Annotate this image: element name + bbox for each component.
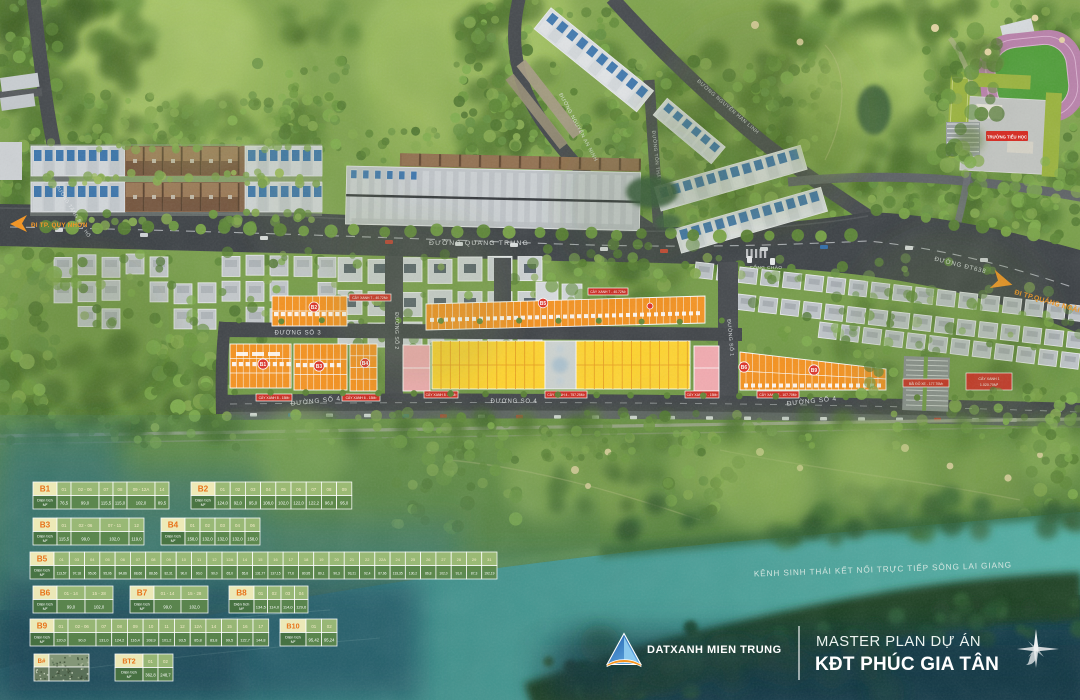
svg-text:131,77: 131,77 bbox=[255, 572, 265, 576]
svg-text:MASTER PLAN DỰ ÁN: MASTER PLAN DỰ ÁN bbox=[816, 633, 981, 650]
svg-text:92,0: 92,0 bbox=[234, 501, 243, 506]
svg-text:95,24: 95,24 bbox=[324, 638, 335, 643]
svg-text:DATXANH MIEN TRUNG: DATXANH MIEN TRUNG bbox=[647, 644, 782, 656]
svg-text:76,5: 76,5 bbox=[60, 501, 69, 506]
svg-text:16: 16 bbox=[273, 557, 278, 562]
svg-text:21: 21 bbox=[350, 557, 355, 562]
svg-text:10: 10 bbox=[182, 557, 187, 562]
svg-text:65,8: 65,8 bbox=[242, 572, 249, 576]
svg-text:01: 01 bbox=[220, 487, 225, 492]
svg-text:90,0: 90,0 bbox=[78, 639, 85, 643]
svg-text:20: 20 bbox=[334, 557, 339, 562]
svg-text:24: 24 bbox=[395, 557, 400, 562]
svg-text:77,6: 77,6 bbox=[288, 572, 295, 576]
svg-text:362,8: 362,8 bbox=[145, 673, 156, 678]
svg-text:108,0: 108,0 bbox=[263, 501, 274, 506]
svg-text:97,18: 97,18 bbox=[73, 572, 81, 576]
svg-text:07: 07 bbox=[311, 487, 316, 492]
svg-text:82,31: 82,31 bbox=[164, 572, 172, 576]
svg-text:95,0: 95,0 bbox=[249, 501, 258, 506]
svg-text:89,5: 89,5 bbox=[158, 501, 167, 506]
svg-text:08: 08 bbox=[327, 487, 332, 492]
svg-text:01: 01 bbox=[190, 523, 195, 528]
svg-text:06: 06 bbox=[250, 523, 255, 528]
svg-text:15 - 28: 15 - 28 bbox=[92, 591, 106, 596]
svg-text:03: 03 bbox=[251, 487, 256, 492]
svg-text:09: 09 bbox=[166, 557, 171, 562]
svg-text:KĐT PHÚC GIA TÂN: KĐT PHÚC GIA TÂN bbox=[815, 653, 999, 675]
svg-text:15: 15 bbox=[258, 557, 263, 562]
svg-text:129,6: 129,6 bbox=[296, 605, 307, 610]
svg-text:29: 29 bbox=[472, 557, 477, 562]
svg-text:B3: B3 bbox=[40, 521, 51, 530]
svg-text:M²: M² bbox=[291, 639, 296, 644]
svg-text:132,0: 132,0 bbox=[202, 537, 213, 542]
svg-text:02: 02 bbox=[327, 624, 332, 629]
svg-text:01: 01 bbox=[311, 624, 316, 629]
svg-text:09: 09 bbox=[133, 624, 138, 629]
svg-text:27: 27 bbox=[441, 557, 446, 562]
svg-text:02: 02 bbox=[205, 523, 210, 528]
svg-text:02 - 06: 02 - 06 bbox=[79, 523, 93, 528]
svg-text:M²: M² bbox=[239, 606, 244, 611]
svg-text:113,57: 113,57 bbox=[57, 572, 67, 576]
svg-text:B8: B8 bbox=[236, 589, 247, 598]
svg-text:87,3: 87,3 bbox=[471, 572, 478, 576]
svg-text:04: 04 bbox=[299, 591, 304, 596]
svg-text:90,3: 90,3 bbox=[333, 572, 340, 576]
svg-text:248,7: 248,7 bbox=[160, 673, 171, 678]
svg-text:102,0: 102,0 bbox=[278, 501, 289, 506]
svg-text:17: 17 bbox=[289, 557, 294, 562]
svg-text:19: 19 bbox=[319, 557, 324, 562]
svg-text:B4: B4 bbox=[168, 521, 179, 530]
svg-text:B7: B7 bbox=[137, 589, 148, 598]
svg-text:131,0: 131,0 bbox=[99, 639, 109, 643]
svg-text:05: 05 bbox=[105, 557, 110, 562]
svg-text:07 - 11: 07 - 11 bbox=[108, 523, 122, 528]
svg-text:05: 05 bbox=[281, 487, 286, 492]
svg-text:03: 03 bbox=[75, 557, 80, 562]
svg-text:08: 08 bbox=[117, 624, 122, 629]
svg-text:99,0: 99,0 bbox=[67, 605, 76, 610]
svg-text:114,0: 114,0 bbox=[269, 605, 279, 610]
svg-text:83,8: 83,8 bbox=[210, 639, 217, 643]
svg-text:122,0: 122,0 bbox=[293, 501, 304, 506]
svg-text:07: 07 bbox=[136, 557, 141, 562]
svg-text:BT2: BT2 bbox=[122, 659, 135, 666]
svg-text:01 - 14: 01 - 14 bbox=[64, 591, 78, 596]
svg-text:92,4: 92,4 bbox=[364, 572, 371, 576]
svg-text:12A: 12A bbox=[226, 557, 233, 562]
svg-text:122,2: 122,2 bbox=[309, 501, 320, 506]
svg-text:B10: B10 bbox=[286, 622, 299, 631]
svg-text:95,0: 95,0 bbox=[340, 501, 349, 506]
svg-text:132,0: 132,0 bbox=[232, 537, 243, 542]
svg-text:132,0: 132,0 bbox=[217, 537, 228, 542]
svg-text:90,0: 90,0 bbox=[211, 572, 218, 576]
svg-text:93,5: 93,5 bbox=[179, 639, 186, 643]
svg-text:B#: B# bbox=[38, 659, 46, 665]
svg-text:115,0: 115,0 bbox=[115, 501, 126, 506]
svg-text:65,0: 65,0 bbox=[226, 572, 233, 576]
svg-text:14: 14 bbox=[211, 624, 216, 629]
svg-text:86,8: 86,8 bbox=[425, 572, 432, 576]
svg-text:08: 08 bbox=[118, 487, 123, 492]
svg-text:137,15: 137,15 bbox=[270, 572, 280, 576]
svg-text:M²: M² bbox=[43, 502, 48, 507]
svg-text:02: 02 bbox=[163, 659, 168, 664]
svg-text:M²: M² bbox=[127, 674, 132, 679]
svg-text:116,4: 116,4 bbox=[131, 639, 140, 643]
svg-text:122,7: 122,7 bbox=[240, 639, 250, 643]
svg-text:115,5: 115,5 bbox=[59, 537, 70, 542]
svg-text:80,1: 80,1 bbox=[318, 572, 325, 576]
svg-text:11: 11 bbox=[164, 624, 169, 629]
svg-text:87,66: 87,66 bbox=[378, 572, 386, 576]
svg-text:119,0: 119,0 bbox=[131, 537, 142, 542]
svg-text:M²: M² bbox=[140, 606, 145, 611]
svg-text:124,2: 124,2 bbox=[115, 639, 125, 643]
svg-text:08: 08 bbox=[151, 557, 156, 562]
svg-text:102,0: 102,0 bbox=[189, 605, 200, 610]
svg-text:88,66: 88,66 bbox=[134, 572, 142, 576]
svg-text:09 - 12A: 09 - 12A bbox=[133, 487, 150, 492]
svg-text:192,19: 192,19 bbox=[484, 572, 494, 576]
svg-text:03: 03 bbox=[285, 591, 290, 596]
svg-text:93,21: 93,21 bbox=[348, 572, 356, 576]
svg-text:22A: 22A bbox=[379, 557, 386, 562]
svg-text:01: 01 bbox=[258, 591, 263, 596]
svg-text:99,0: 99,0 bbox=[163, 605, 172, 610]
svg-text:12: 12 bbox=[180, 624, 185, 629]
svg-text:115,5: 115,5 bbox=[101, 501, 112, 506]
svg-text:15 - 28: 15 - 28 bbox=[188, 591, 202, 596]
svg-text:95,42: 95,42 bbox=[309, 638, 320, 643]
svg-text:99,0: 99,0 bbox=[81, 537, 90, 542]
svg-text:124,0: 124,0 bbox=[217, 501, 228, 506]
svg-text:102,0: 102,0 bbox=[94, 605, 105, 610]
svg-text:12: 12 bbox=[134, 523, 139, 528]
svg-text:03: 03 bbox=[220, 523, 225, 528]
svg-text:B5: B5 bbox=[37, 555, 48, 564]
svg-text:31: 31 bbox=[487, 557, 492, 562]
svg-text:06: 06 bbox=[296, 487, 301, 492]
svg-text:15: 15 bbox=[227, 624, 232, 629]
svg-text:25: 25 bbox=[411, 557, 416, 562]
svg-text:90,0: 90,0 bbox=[196, 572, 203, 576]
svg-text:14: 14 bbox=[160, 487, 165, 492]
svg-text:B2: B2 bbox=[198, 485, 209, 494]
svg-text:07: 07 bbox=[104, 487, 109, 492]
svg-text:M²: M² bbox=[171, 538, 176, 543]
svg-text:108,9: 108,9 bbox=[146, 639, 156, 643]
svg-text:M²: M² bbox=[43, 538, 48, 543]
svg-text:16: 16 bbox=[243, 624, 248, 629]
svg-text:M²: M² bbox=[43, 606, 48, 611]
svg-text:134,5: 134,5 bbox=[256, 605, 267, 610]
svg-text:01: 01 bbox=[148, 659, 153, 664]
svg-text:M²: M² bbox=[201, 502, 206, 507]
svg-text:B6: B6 bbox=[40, 589, 51, 598]
svg-text:B9: B9 bbox=[37, 622, 48, 631]
svg-text:12: 12 bbox=[212, 557, 217, 562]
svg-text:133,35: 133,35 bbox=[393, 572, 403, 576]
svg-text:102,0: 102,0 bbox=[439, 572, 447, 576]
svg-text:101,2: 101,2 bbox=[162, 639, 172, 643]
svg-text:02: 02 bbox=[272, 591, 277, 596]
svg-text:10: 10 bbox=[148, 624, 153, 629]
svg-text:102,0: 102,0 bbox=[109, 537, 120, 542]
svg-text:07: 07 bbox=[101, 624, 106, 629]
svg-text:M²: M² bbox=[40, 639, 45, 644]
svg-text:22: 22 bbox=[365, 557, 370, 562]
svg-text:130,2: 130,2 bbox=[409, 572, 417, 576]
svg-text:04: 04 bbox=[235, 523, 240, 528]
svg-text:12A: 12A bbox=[194, 624, 202, 629]
svg-text:158,0: 158,0 bbox=[247, 537, 258, 542]
svg-text:80,95: 80,95 bbox=[302, 572, 310, 576]
svg-text:M²: M² bbox=[40, 572, 45, 577]
svg-text:99,0: 99,0 bbox=[81, 501, 90, 506]
svg-text:04: 04 bbox=[266, 487, 271, 492]
svg-text:114,0: 114,0 bbox=[283, 605, 293, 610]
svg-text:01 - 14: 01 - 14 bbox=[161, 591, 175, 596]
svg-text:01: 01 bbox=[62, 487, 67, 492]
svg-text:90,0: 90,0 bbox=[181, 572, 188, 576]
svg-text:01: 01 bbox=[59, 557, 64, 562]
svg-text:96,0: 96,0 bbox=[325, 501, 334, 506]
svg-text:28: 28 bbox=[457, 557, 462, 562]
svg-text:02: 02 bbox=[235, 487, 240, 492]
svg-text:09: 09 bbox=[342, 487, 347, 492]
svg-text:B1: B1 bbox=[40, 485, 51, 494]
svg-text:06: 06 bbox=[120, 557, 125, 562]
svg-text:88,66: 88,66 bbox=[149, 572, 157, 576]
svg-text:102,0: 102,0 bbox=[136, 501, 147, 506]
svg-text:99,5: 99,5 bbox=[226, 639, 233, 643]
svg-text:14: 14 bbox=[243, 557, 248, 562]
svg-text:85,8: 85,8 bbox=[194, 639, 201, 643]
svg-text:02 - 06: 02 - 06 bbox=[75, 624, 89, 629]
svg-text:144,8: 144,8 bbox=[256, 639, 266, 643]
svg-text:95,06: 95,06 bbox=[88, 572, 96, 576]
svg-text:84,86: 84,86 bbox=[119, 572, 127, 576]
svg-text:02 - 06: 02 - 06 bbox=[78, 487, 92, 492]
svg-text:158,0: 158,0 bbox=[187, 537, 198, 542]
svg-text:26: 26 bbox=[426, 557, 431, 562]
svg-text:01: 01 bbox=[62, 523, 67, 528]
svg-text:120,0: 120,0 bbox=[56, 639, 66, 643]
svg-text:17: 17 bbox=[258, 624, 263, 629]
svg-text:95,06: 95,06 bbox=[103, 572, 111, 576]
svg-text:01: 01 bbox=[59, 624, 64, 629]
svg-text:04: 04 bbox=[90, 557, 95, 562]
svg-text:18: 18 bbox=[304, 557, 309, 562]
svg-text:91,0: 91,0 bbox=[456, 572, 463, 576]
